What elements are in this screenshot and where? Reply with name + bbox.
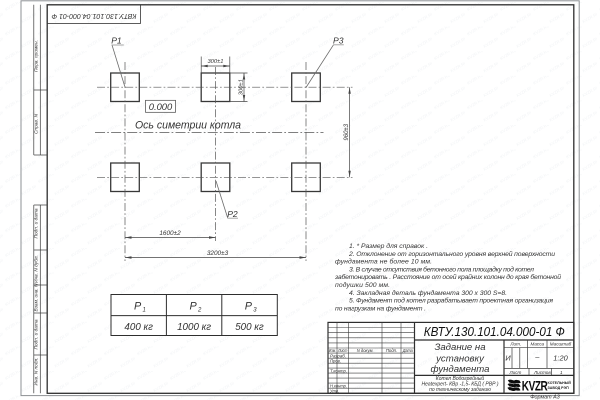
svg-text:4. Закладная деталь фундаме: 4. Закладная деталь фундамента 300 x 300… — [349, 289, 507, 297]
svg-text:P: P — [245, 301, 253, 313]
svg-text:1000 кг: 1000 кг — [177, 322, 211, 333]
svg-text:по нагрузкам на фундамент .: по нагрузкам на фундамент . — [335, 304, 426, 312]
svg-text:1:20: 1:20 — [553, 354, 568, 363]
svg-text:забетонировать . Расстояние: забетонировать . Расстояние от осей край… — [334, 273, 561, 281]
svg-text:1600±2: 1600±2 — [159, 230, 181, 237]
svg-text:P3: P3 — [333, 35, 344, 45]
svg-text:КВТУ.130.101.04.000-01 Ф: КВТУ.130.101.04.000-01 Ф — [51, 12, 137, 19]
svg-text:Подп. и дата: Подп. и дата — [33, 208, 39, 238]
svg-text:Пров.: Пров. — [330, 359, 341, 365]
svg-text:400 кг: 400 кг — [124, 322, 153, 333]
svg-text:Листов: Листов — [533, 370, 551, 375]
svg-text:5. Фундамент под котел раз: 5. Фундамент под котел разрабатывает про… — [349, 297, 553, 305]
svg-text:Задание на: Задание на — [434, 342, 485, 353]
svg-text:P1: P1 — [111, 36, 122, 46]
svg-text:Изм.: Изм. — [329, 348, 336, 353]
svg-text:Взам. инв. N: Взам. инв. N — [33, 283, 39, 311]
svg-text:фундамента не более 10 мм.: фундамента не более 10 мм. — [335, 258, 432, 266]
svg-text:Инв. N дубл.: Инв. N дубл. — [33, 255, 39, 283]
svg-text:3. В случае отсутствия бет: 3. В случае отсутствия бетонного пола пл… — [349, 265, 534, 273]
svg-text:2. Отклонение от горизонтал: 2. Отклонение от горизонтального уровня … — [348, 250, 555, 258]
svg-text:Перв. примен.: Перв. примен. — [33, 40, 39, 72]
svg-text:Масштаб: Масштаб — [550, 342, 572, 347]
svg-text:КОТЕЛЬНЫЙ: КОТЕЛЬНЫЙ — [548, 381, 572, 385]
svg-text:Масса: Масса — [531, 342, 545, 347]
svg-text:Разраб.: Разраб. — [330, 354, 346, 360]
svg-text:И: И — [505, 354, 511, 363]
svg-text:P: P — [190, 301, 198, 313]
svg-text:1. * Размер для справок .: 1. * Размер для справок . — [349, 242, 428, 250]
svg-text:ЗАВОД РЭП: ЗАВОД РЭП — [548, 386, 569, 390]
svg-text:960±3: 960±3 — [344, 123, 350, 140]
svg-text:1: 1 — [560, 370, 563, 375]
svg-text:N докум.: N докум. — [357, 348, 374, 353]
svg-text:установку: установку — [435, 353, 485, 364]
svg-text:500 кг: 500 кг — [235, 322, 264, 333]
svg-text:КВТУ.130.101.04.000-01 Ф: КВТУ.130.101.04.000-01 Ф — [424, 324, 565, 339]
svg-text:KVZR: KVZR — [522, 378, 548, 394]
svg-text:Подп. и дата: Подп. и дата — [33, 319, 39, 349]
svg-text:Подп.: Подп. — [386, 348, 398, 353]
svg-text:–: – — [534, 353, 540, 362]
svg-text:Формат А3: Формат А3 — [530, 395, 560, 400]
svg-text:300±1: 300±1 — [207, 59, 223, 65]
svg-text:Ось симетрии котла: Ось симетрии котла — [135, 120, 241, 132]
svg-text:по техническому заданию: по техническому заданию — [429, 387, 491, 393]
svg-text:Дата: Дата — [402, 348, 413, 353]
svg-text:подушки 500 мм.: подушки 500 мм. — [335, 281, 390, 289]
svg-text:3200±3: 3200±3 — [207, 250, 229, 257]
svg-text:2: 2 — [197, 308, 202, 314]
svg-text:Лист: Лист — [337, 348, 347, 353]
svg-text:P: P — [134, 301, 142, 313]
svg-text:фундамента: фундамента — [431, 364, 490, 375]
svg-text:Утв.: Утв. — [330, 389, 339, 395]
svg-text:Инв. N подл.: Инв. N подл. — [33, 357, 39, 385]
svg-text:Т.контр.: Т.контр. — [330, 369, 347, 375]
svg-text:Справ. N: Справ. N — [33, 113, 39, 134]
svg-text:1: 1 — [143, 308, 146, 314]
svg-text:0.000: 0.000 — [149, 101, 173, 112]
svg-text:Лист: Лист — [509, 370, 522, 375]
svg-text:Лит.: Лит. — [509, 342, 521, 347]
svg-text:P2: P2 — [227, 209, 238, 219]
svg-text:300±1: 300±1 — [239, 79, 245, 95]
